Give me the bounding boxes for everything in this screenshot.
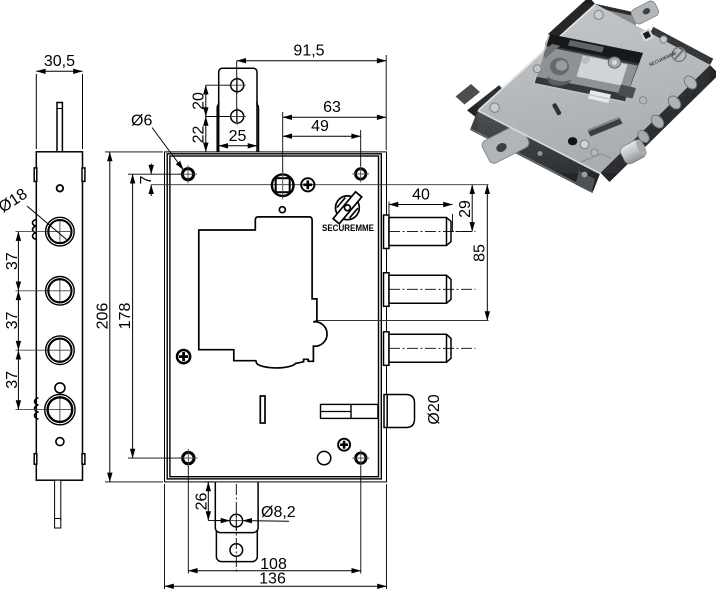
svg-text:25: 25 <box>229 128 247 145</box>
svg-text:91,5: 91,5 <box>293 43 324 60</box>
svg-text:Ø20: Ø20 <box>426 394 443 424</box>
svg-text:22: 22 <box>190 126 207 144</box>
svg-text:178: 178 <box>117 303 134 330</box>
svg-text:206: 206 <box>95 303 112 330</box>
svg-text:SECUREMME: SECUREMME <box>322 223 374 234</box>
svg-text:26: 26 <box>193 493 210 511</box>
svg-text:37: 37 <box>4 371 21 389</box>
svg-text:7: 7 <box>138 175 155 184</box>
svg-text:20: 20 <box>190 92 207 110</box>
svg-text:Ø8,2: Ø8,2 <box>261 504 296 521</box>
svg-text:63: 63 <box>323 99 341 116</box>
svg-text:85: 85 <box>472 244 489 262</box>
svg-text:49: 49 <box>311 118 329 135</box>
svg-text:30,5: 30,5 <box>44 53 75 70</box>
svg-text:37: 37 <box>4 252 21 270</box>
svg-text:29: 29 <box>457 200 474 218</box>
svg-text:136: 136 <box>259 571 286 588</box>
svg-text:Ø6: Ø6 <box>131 113 152 130</box>
svg-text:37: 37 <box>4 312 21 330</box>
svg-text:40: 40 <box>412 187 430 204</box>
